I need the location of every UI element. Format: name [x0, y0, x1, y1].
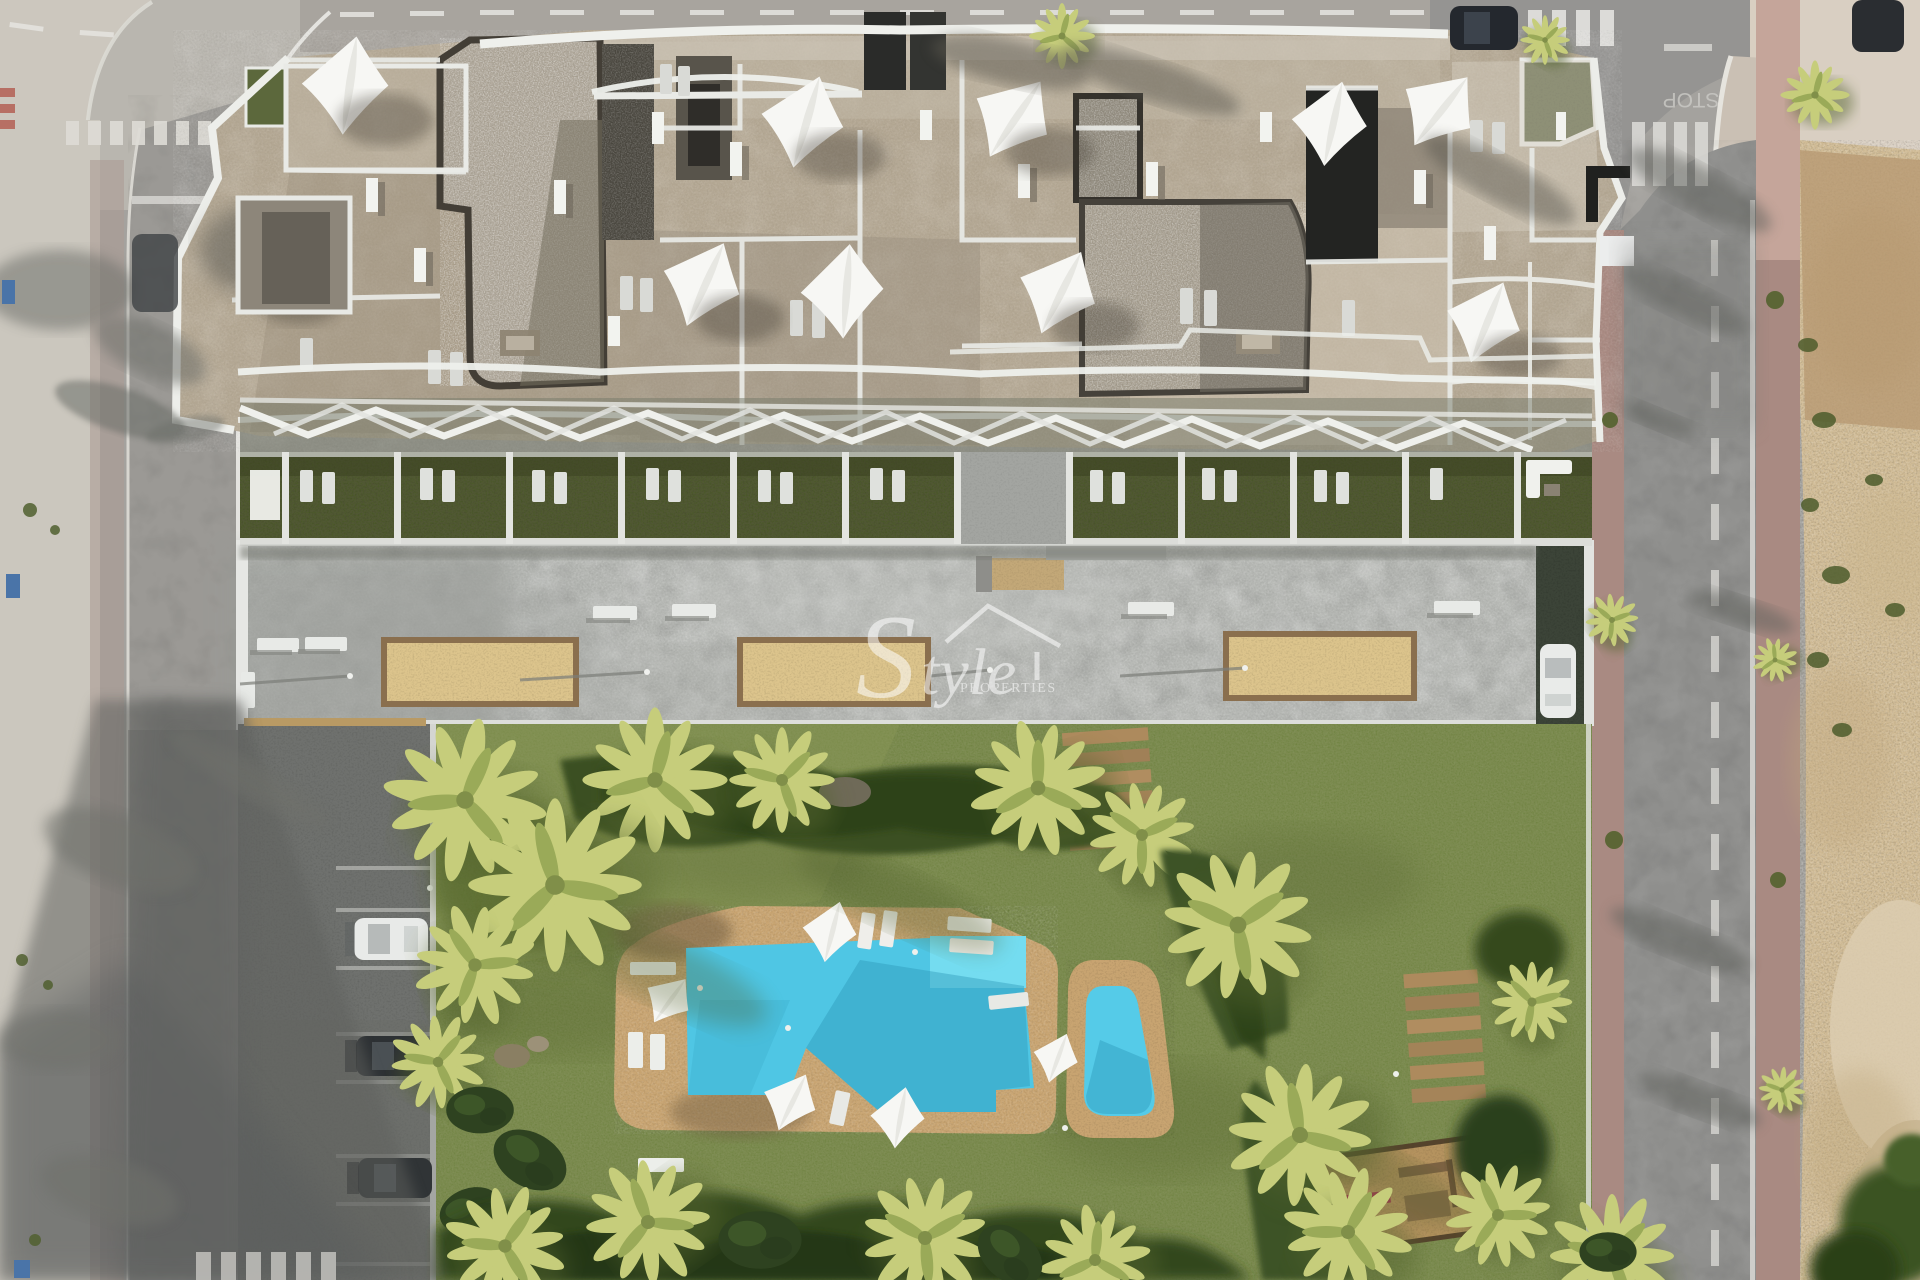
svg-text:tyle: tyle [921, 636, 1016, 709]
svg-text:S: S [856, 590, 916, 723]
svg-text:STOP: STOP [1663, 88, 1720, 111]
svg-text:PROPERTIES: PROPERTIES [960, 681, 1057, 696]
